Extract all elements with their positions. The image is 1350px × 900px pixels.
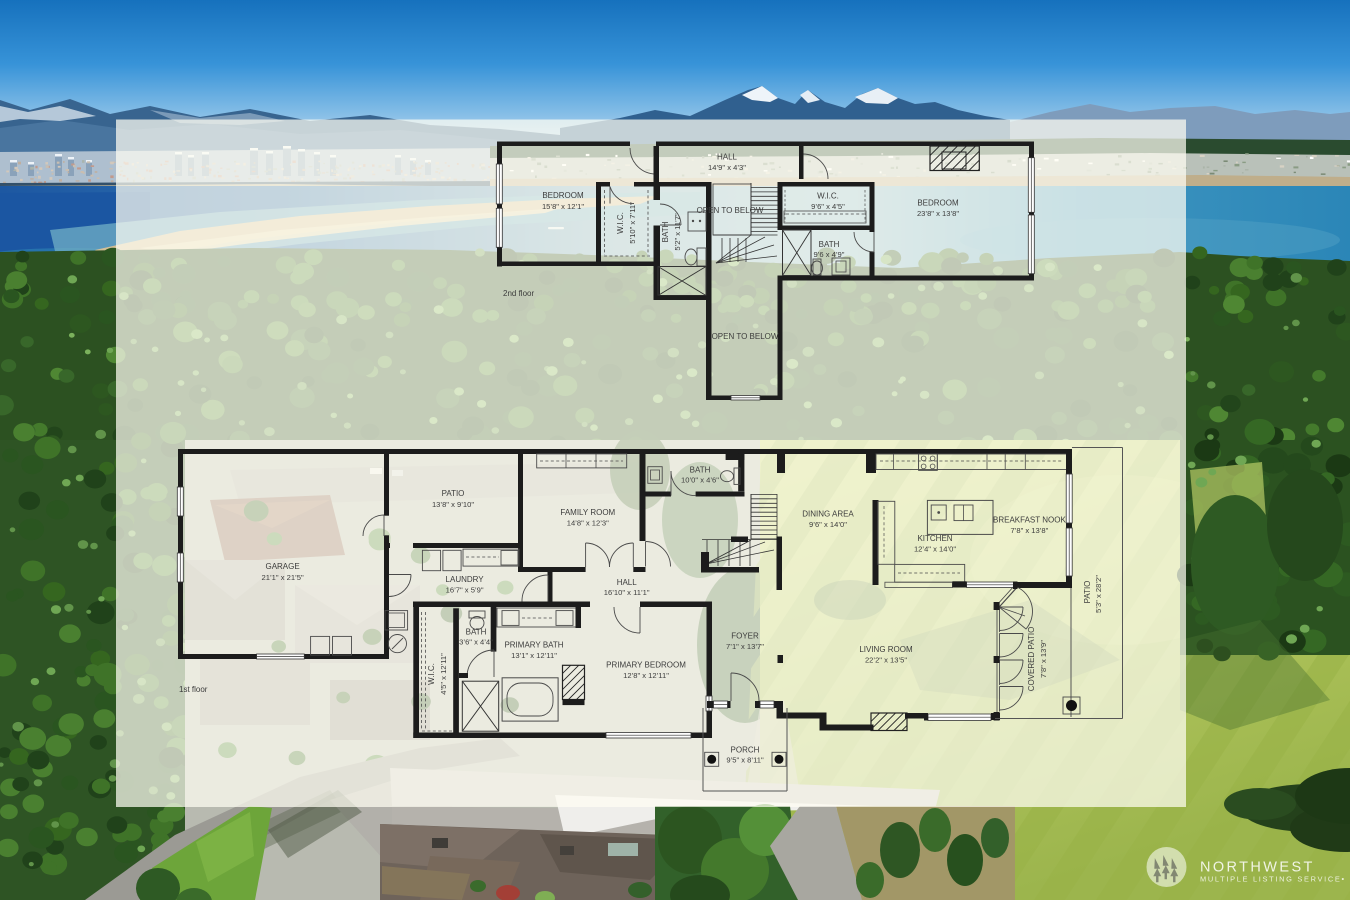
svg-text:15’8" x 12’1": 15’8" x 12’1" xyxy=(542,202,584,211)
svg-text:9’5" x 8’11": 9’5" x 8’11" xyxy=(726,756,764,765)
svg-text:BEDROOM: BEDROOM xyxy=(542,191,584,200)
svg-text:FOYER: FOYER xyxy=(731,632,759,641)
svg-text:HALL: HALL xyxy=(717,153,738,162)
svg-text:22’2" x 13’5": 22’2" x 13’5" xyxy=(865,656,907,665)
svg-text:3’6" x 4’4": 3’6" x 4’4" xyxy=(459,638,493,647)
svg-text:PATIO: PATIO xyxy=(442,489,465,498)
svg-text:MULTIPLE LISTING SERVICE•: MULTIPLE LISTING SERVICE• xyxy=(1200,875,1346,884)
svg-text:12’8" x 12’11": 12’8" x 12’11" xyxy=(623,671,669,680)
svg-text:BEDROOM: BEDROOM xyxy=(917,199,959,208)
svg-text:5’3" x 28’2": 5’3" x 28’2" xyxy=(1094,575,1103,613)
svg-text:23’8" x 13’8": 23’8" x 13’8" xyxy=(917,209,959,218)
svg-text:W.I.C.: W.I.C. xyxy=(427,663,436,685)
svg-text:GARAGE: GARAGE xyxy=(265,562,299,571)
svg-text:LIVING ROOM: LIVING ROOM xyxy=(859,645,913,654)
svg-text:4’5" x 12’11": 4’5" x 12’11" xyxy=(439,653,448,695)
svg-text:DINING AREA: DINING AREA xyxy=(802,510,854,519)
svg-text:16’10" x 11’1": 16’10" x 11’1" xyxy=(604,588,650,597)
svg-text:14’9" x 4’3": 14’9" x 4’3" xyxy=(708,163,746,172)
svg-text:COVERED PATIO: COVERED PATIO xyxy=(1027,627,1036,692)
svg-text:KITCHEN: KITCHEN xyxy=(917,534,952,543)
svg-text:7’1" x 13’7": 7’1" x 13’7" xyxy=(726,642,764,651)
svg-text:16’7" x 5’9": 16’7" x 5’9" xyxy=(446,586,484,595)
svg-text:LAUNDRY: LAUNDRY xyxy=(446,575,485,584)
svg-text:BATH: BATH xyxy=(466,628,487,637)
svg-text:10’0" x 4’6": 10’0" x 4’6" xyxy=(681,476,719,485)
svg-text:HALL: HALL xyxy=(617,578,638,587)
svg-text:1st floor: 1st floor xyxy=(179,685,208,694)
svg-text:BATH: BATH xyxy=(819,240,840,249)
svg-text:BATH: BATH xyxy=(661,221,670,242)
svg-text:FAMILY ROOM: FAMILY ROOM xyxy=(560,508,615,517)
svg-text:PORCH: PORCH xyxy=(731,746,760,755)
svg-text:BATH: BATH xyxy=(690,466,711,475)
svg-text:OPEN TO BELOW: OPEN TO BELOW xyxy=(712,332,779,341)
svg-text:BREAKFAST NOOK: BREAKFAST NOOK xyxy=(993,516,1066,525)
svg-text:PRIMARY BEDROOM: PRIMARY BEDROOM xyxy=(606,661,686,670)
svg-text:13’8" x 9’10": 13’8" x 9’10" xyxy=(432,500,474,509)
svg-text:9’6" x 14’0": 9’6" x 14’0" xyxy=(809,520,847,529)
svg-text:W.I.C.: W.I.C. xyxy=(616,212,625,234)
svg-text:NORTHWEST: NORTHWEST xyxy=(1200,860,1315,876)
svg-text:7’8" x 13’9": 7’8" x 13’9" xyxy=(1039,640,1048,678)
svg-text:W.I.C.: W.I.C. xyxy=(817,192,839,201)
svg-text:2nd floor: 2nd floor xyxy=(503,289,534,298)
svg-text:21’1" x 21’5": 21’1" x 21’5" xyxy=(262,573,304,582)
svg-text:14’8" x 12’3": 14’8" x 12’3" xyxy=(567,519,609,528)
svg-text:5’2" x 11’7": 5’2" x 11’7" xyxy=(673,213,682,251)
svg-text:7’8" x 13’8": 7’8" x 13’8" xyxy=(1010,526,1048,535)
svg-text:9’6 x 4’9": 9’6 x 4’9" xyxy=(814,250,845,259)
svg-text:13’1" x 12’11": 13’1" x 12’11" xyxy=(511,651,557,660)
svg-text:PATIO: PATIO xyxy=(1083,581,1092,604)
svg-text:12’4" x 14’0": 12’4" x 14’0" xyxy=(914,545,956,554)
svg-text:9’6" x 4’5": 9’6" x 4’5" xyxy=(811,202,845,211)
svg-text:PRIMARY BATH: PRIMARY BATH xyxy=(504,641,563,650)
svg-text:5’10" x 7’11": 5’10" x 7’11" xyxy=(628,202,637,244)
